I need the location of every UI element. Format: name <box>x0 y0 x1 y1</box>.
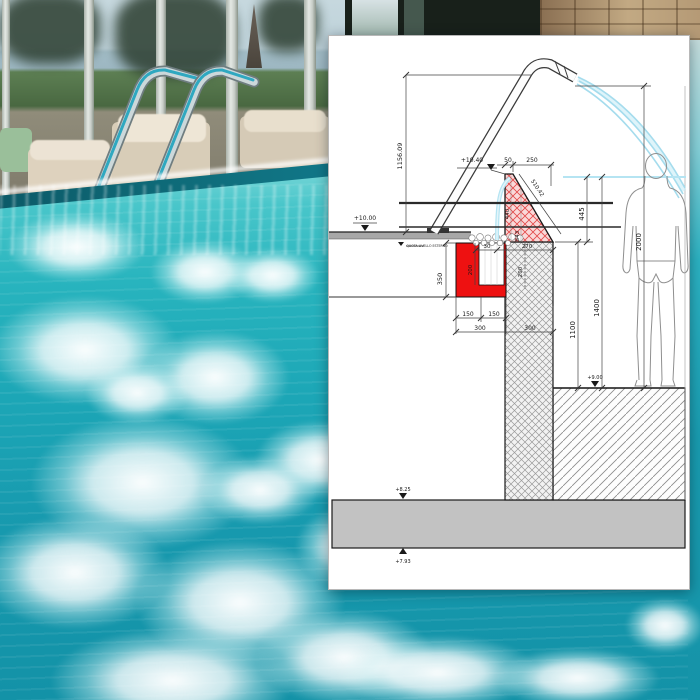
deck-finish <box>329 232 471 239</box>
dim-offset: 250 <box>526 157 538 164</box>
sun-ripples <box>0 185 345 255</box>
level-wall-top: +10.40 <box>461 157 483 164</box>
dim-350: 350 <box>436 273 444 285</box>
level-slab-bottom: +7.93 <box>395 559 410 565</box>
level-slab-top: +8.25 <box>395 487 410 493</box>
level-floor: +9.00 <box>587 375 602 381</box>
water-cannon-section-drawing: 1156.09 +10.40 50 250 510.42 440 543 445… <box>329 36 689 589</box>
dim-150-a: 150 <box>462 311 474 318</box>
dim-slope: 510.42 <box>529 179 545 198</box>
dim-crest: 50 <box>504 157 512 164</box>
concrete-wall <box>505 242 553 500</box>
foam-patch <box>495 648 660 700</box>
dim-cannon-height: 1156.09 <box>396 143 404 170</box>
technical-drawing-sheet: 1156.09 +10.40 50 250 510.42 440 543 445… <box>328 35 690 590</box>
dim-1100: 1100 <box>569 321 577 339</box>
stone-pillar <box>540 0 700 40</box>
foam-patch <box>200 455 320 525</box>
level-deck: +10.00 <box>354 215 376 222</box>
water-cannon <box>427 61 686 240</box>
human-figure <box>623 154 688 387</box>
dim-270: 270 <box>522 244 533 250</box>
foundation-slab <box>332 500 685 548</box>
deck-note: QUOTA LIVELLO ESTERNO <box>406 244 448 248</box>
dim-wall-a: 440 <box>505 208 511 219</box>
bright-window-slot <box>352 0 398 38</box>
dim-200-hatch: 200 <box>518 266 524 277</box>
parapet-wall <box>505 174 553 242</box>
dim-300-b: 300 <box>524 325 536 332</box>
dim-150-b: 150 <box>488 311 500 318</box>
dim-drop: 445 <box>578 207 586 220</box>
dim-300-a: 300 <box>474 325 486 332</box>
foam-patch <box>225 248 320 303</box>
foam-patch <box>625 598 700 653</box>
deck-fill-hatch <box>553 388 685 500</box>
dim-2000: 2000 <box>635 233 643 251</box>
dim-200-red: 200 <box>468 264 474 275</box>
dim-1400: 1400 <box>593 299 601 317</box>
dim-wall-b: 543 <box>515 230 521 241</box>
foam-patch <box>85 362 190 424</box>
window-reflection <box>404 0 424 38</box>
pool-photo-with-diagram: 1156.09 +10.40 50 250 510.42 440 543 445… <box>0 0 700 700</box>
dim-30: 30 <box>484 244 491 250</box>
